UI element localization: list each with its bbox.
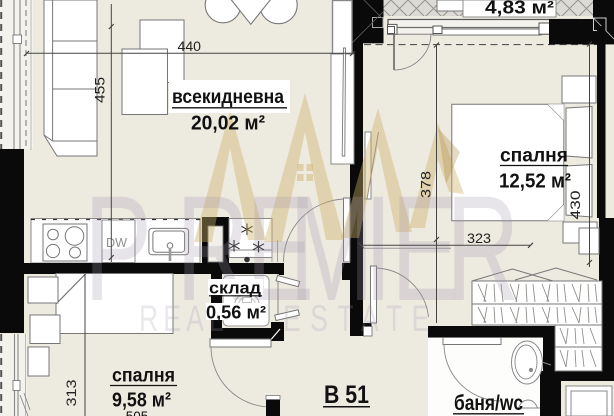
svg-text:313: 313: [64, 380, 79, 407]
svg-text:ESTATE: ESTATE: [283, 298, 439, 339]
svg-text:430: 430: [568, 191, 583, 220]
svg-text:20,02 м²: 20,02 м²: [191, 113, 265, 135]
svg-text:баня/wc: баня/wc: [454, 392, 523, 415]
svg-text:спалня: спалня: [500, 146, 568, 167]
svg-text:323: 323: [467, 231, 491, 246]
svg-text:спалня: спалня: [112, 366, 175, 387]
svg-text:B 51: B 51: [324, 381, 369, 409]
svg-text:склад: склад: [209, 279, 261, 298]
svg-text:378: 378: [419, 171, 434, 198]
svg-text:12,52 м²: 12,52 м²: [499, 171, 571, 193]
svg-text:всекидневна: всекидневна: [172, 87, 284, 108]
svg-text:0,56 м²: 0,56 м²: [206, 303, 266, 323]
svg-text:455: 455: [93, 77, 108, 103]
svg-text:505: 505: [126, 409, 149, 416]
svg-text:440: 440: [178, 39, 202, 54]
svg-text:4,83 м²: 4,83 м²: [485, 0, 554, 18]
